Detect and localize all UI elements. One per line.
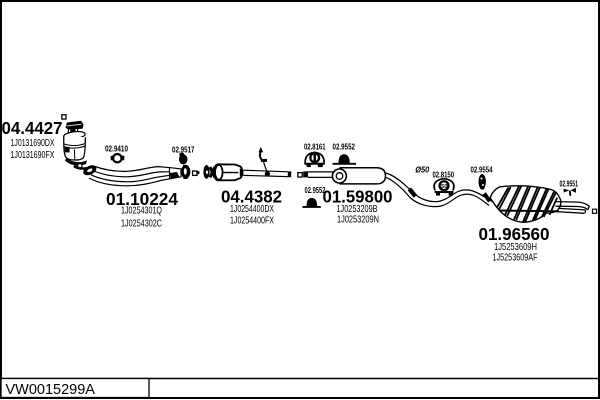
svg-text:02.9551: 02.9551 [560, 180, 579, 189]
svg-text:1J0131690DX: 1J0131690DX [11, 137, 55, 149]
svg-text:02.9552: 02.9552 [333, 143, 356, 152]
svg-text:1J0254400FX: 1J0254400FX [230, 214, 274, 226]
svg-text:02.9554: 02.9554 [471, 166, 493, 175]
svg-text:Ø50: Ø50 [415, 166, 430, 175]
svg-text:1J0254302C: 1J0254302C [121, 217, 162, 229]
svg-text:1J0254301Q: 1J0254301Q [121, 205, 162, 217]
svg-text:02.8161: 02.8161 [304, 143, 326, 152]
svg-text:1J5253609AF: 1J5253609AF [493, 252, 538, 264]
svg-text:1J0131690FX: 1J0131690FX [11, 149, 55, 161]
svg-text:02.9410: 02.9410 [105, 145, 128, 154]
svg-text:50: 50 [441, 184, 448, 190]
svg-text:1J0254400DX: 1J0254400DX [230, 203, 274, 215]
svg-text:VW0015299A: VW0015299A [6, 382, 96, 398]
svg-text:1J0253209N: 1J0253209N [337, 213, 379, 225]
svg-text:04.4427: 04.4427 [2, 118, 63, 138]
